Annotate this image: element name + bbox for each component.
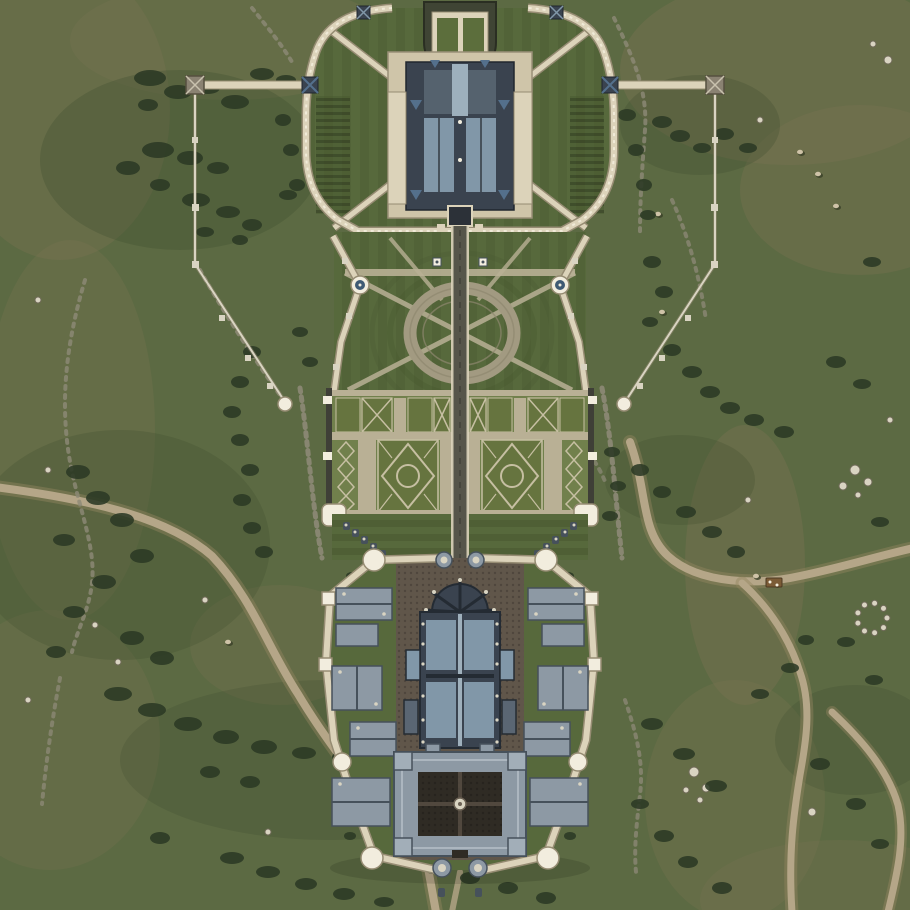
castle-wall-tower-w[interactable] [302, 77, 318, 93]
fence-corner-tower-west[interactable] [186, 76, 204, 94]
cloister-fountain[interactable] [454, 798, 466, 810]
game-map[interactable] [0, 0, 910, 910]
cone-tower-west[interactable] [351, 276, 369, 294]
castle-corner-tower-nw[interactable] [357, 6, 370, 19]
cone-tower-east[interactable] [551, 276, 569, 294]
castle-corner-tower-ne[interactable] [550, 6, 563, 19]
castle-wall-tower-e[interactable] [602, 77, 618, 93]
cloister-court[interactable] [394, 752, 526, 858]
cart[interactable] [766, 578, 782, 587]
central-road[interactable] [451, 226, 469, 562]
castle-keep[interactable] [388, 52, 532, 226]
fence-corner-tower-east[interactable] [706, 76, 724, 94]
diamond-bed-east[interactable] [482, 440, 542, 512]
map-canvas[interactable] [0, 0, 910, 910]
diamond-bed-west[interactable] [378, 440, 438, 512]
